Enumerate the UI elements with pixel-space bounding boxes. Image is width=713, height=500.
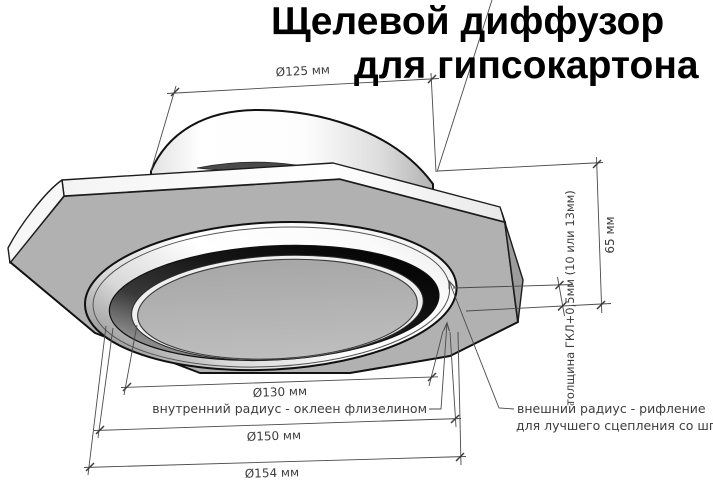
annotation-outer-radius-line2: для лучшего сцепления со шпаклёвкой (516, 418, 713, 433)
dim-collar-diameter: Ø125 мм (275, 63, 330, 80)
ext-125-right (431, 73, 436, 172)
ext-65-top (438, 163, 603, 172)
technical-drawing: Щелевой диффузор для гипсокартона Ø125 м… (0, 0, 713, 500)
dim-total-height: 65 мм (603, 216, 617, 253)
annotation-inner-radius: внутренний радиус - оклеен флизелином (152, 401, 427, 416)
dim-flange-diameter: Ø154 мм (245, 465, 300, 480)
dim-inner-ring-diameter: Ø130 мм (252, 384, 307, 400)
page-title-line2: для гипсокартона (354, 44, 699, 87)
diffuser-diagram: Щелевой диффузор для гипсокартона Ø125 м… (0, 0, 713, 500)
dim-outer-ring-diameter: Ø150 мм (247, 428, 302, 444)
page-title-line1: Щелевой диффузор (271, 0, 664, 43)
annotation-outer-radius-line1: внешний радиус - рифление (517, 401, 706, 416)
dim-panel-thickness: толщина ГКЛ+0,5мм (10 или 13мм) (563, 190, 577, 406)
ext-150-left (98, 328, 113, 438)
dimline-65 (597, 157, 602, 313)
